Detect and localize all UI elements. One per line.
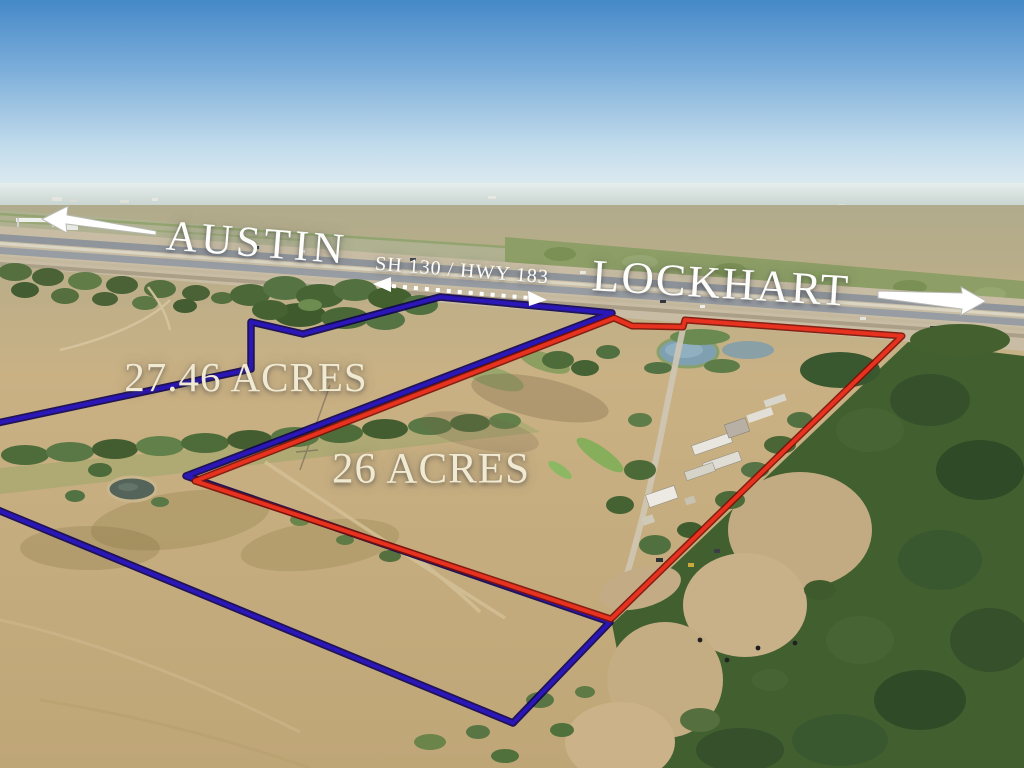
sky	[0, 0, 1024, 205]
parcel-label-26-acres: 26 ACRES	[332, 445, 530, 494]
aerial-photo: AUSTIN LOCKHART SH 130 / HWY 183 27.46 A…	[0, 0, 1024, 768]
parcel-label-27-acres: 27.46 ACRES	[124, 353, 367, 401]
